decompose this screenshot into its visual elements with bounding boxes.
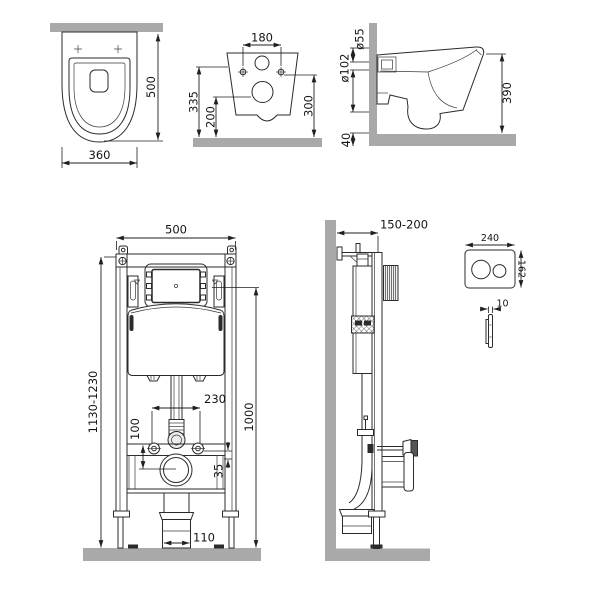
wall-hatch — [369, 23, 377, 146]
dim-frame-width: 500 — [165, 223, 187, 237]
flush-pipe — [168, 376, 185, 449]
waste-outlet — [160, 454, 192, 486]
dim-outlet-diameter: ø102 — [338, 54, 352, 83]
dim-clearance: 40 — [339, 133, 353, 148]
floor-hatch — [377, 134, 516, 146]
toilet-back-outline — [227, 53, 298, 121]
floor-anchor-right — [214, 545, 224, 549]
dim-stud-spacing: 230 — [204, 392, 226, 406]
floor-hatch — [193, 138, 322, 147]
outlet-cylinder-profile — [382, 453, 414, 492]
dim-inlet-height: 335 — [187, 91, 201, 113]
dim-bowl-height: 390 — [500, 82, 514, 104]
dim-panel-height: 1000 — [242, 402, 256, 431]
dim-holes-height: 300 — [302, 95, 316, 117]
dim-plate-width: 240 — [481, 233, 499, 244]
flush-plate-shaft-cover — [384, 266, 399, 301]
dim-offset-35: 35 — [212, 464, 226, 479]
flush-shaft-hatched-box — [352, 316, 375, 333]
frame-front-view: 500 1130-1230 1000 230 100 35 110 — [83, 223, 261, 562]
outlet-dimension — [350, 70, 369, 112]
dim-inlet-diameter: ø55 — [353, 28, 367, 50]
wall-hatch — [325, 220, 336, 549]
frame-side-view: 150-200 — [325, 218, 430, 562]
cistern-slot-left — [130, 315, 134, 331]
cistern-profile — [353, 254, 372, 430]
cistern-slot-right — [219, 315, 223, 331]
dim-depth-range: 150-200 — [380, 218, 428, 232]
toilet-top-view: 500 360 — [50, 23, 163, 168]
dim-toilet-width: 360 — [89, 148, 111, 162]
dim-frame-height-range: 1130-1230 — [86, 371, 100, 434]
dim-plate-thickness: 10 — [496, 299, 508, 310]
toilet-rear-view: 180 335 200 300 — [187, 31, 323, 148]
drawing-svg: 500 360 180 335 200 300 — [0, 0, 600, 600]
dim-outlet-height: 200 — [204, 106, 218, 128]
flush-plate-view: 240 162 10 — [465, 233, 527, 348]
frame-rail-profile — [372, 253, 382, 512]
floor-hatch — [83, 548, 261, 561]
dim-plate-height: 162 — [516, 260, 527, 278]
access-panel-window — [145, 264, 207, 307]
dim-offset-100: 100 — [128, 418, 142, 440]
wall-hatch — [50, 23, 163, 32]
toilet-body-outline — [62, 32, 137, 142]
toilet-side-view: ø55 ø102 40 390 — [338, 23, 517, 147]
dim-hole-spacing: 180 — [251, 31, 273, 45]
cistern — [128, 304, 224, 376]
floor-anchor-left — [128, 545, 138, 549]
technical-drawing-canvas: 500 360 180 335 200 300 — [0, 0, 600, 600]
flush-plate-profile — [486, 315, 493, 348]
floor-hatch — [325, 549, 430, 562]
dim-drain-width: 110 — [193, 531, 215, 545]
dim-toilet-depth: 500 — [144, 76, 158, 98]
